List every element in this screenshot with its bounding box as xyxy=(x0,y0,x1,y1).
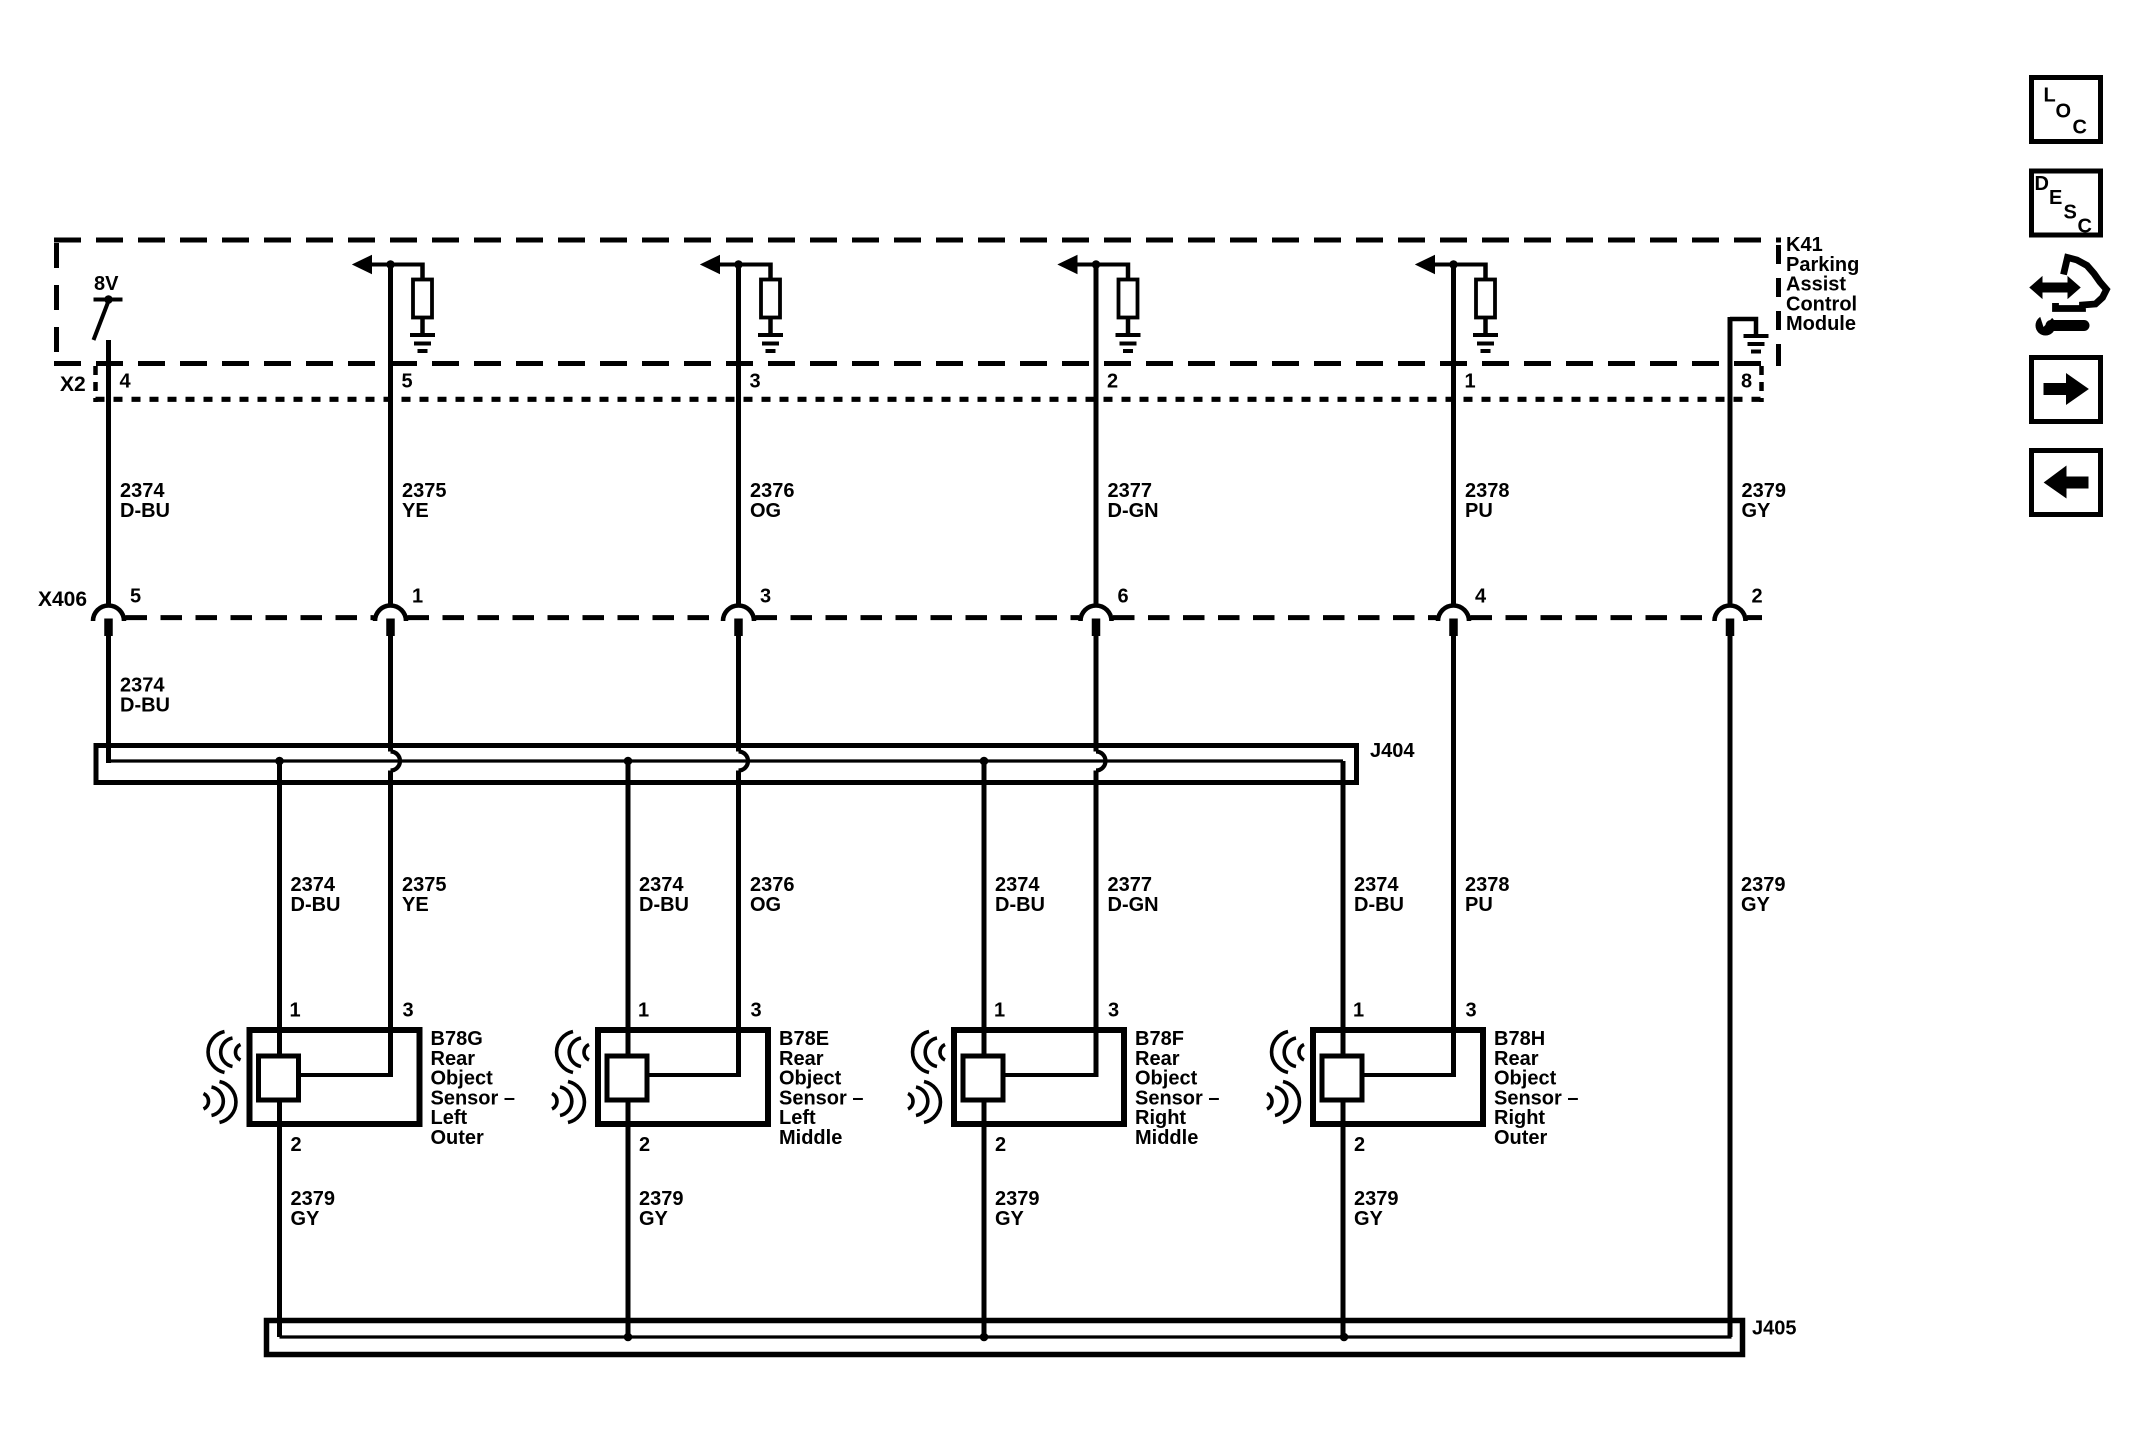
svg-text:5: 5 xyxy=(402,371,413,393)
svg-text:4: 4 xyxy=(1475,586,1487,608)
svg-text:2: 2 xyxy=(1752,586,1763,608)
svg-text:1: 1 xyxy=(994,1000,1005,1022)
svg-text:L: L xyxy=(2044,85,2056,107)
svg-text:Left: Left xyxy=(431,1107,468,1129)
svg-text:2379: 2379 xyxy=(1354,1188,1399,1210)
svg-text:GY: GY xyxy=(995,1208,1025,1230)
svg-text:J404: J404 xyxy=(1370,740,1415,762)
svg-text:GY: GY xyxy=(291,1208,321,1230)
svg-text:2: 2 xyxy=(291,1134,302,1156)
svg-text:D-BU: D-BU xyxy=(120,500,170,522)
svg-text:B78F: B78F xyxy=(1135,1028,1184,1050)
svg-text:D-GN: D-GN xyxy=(1108,500,1159,522)
svg-text:GY: GY xyxy=(1741,894,1771,916)
svg-text:2374: 2374 xyxy=(120,480,165,502)
svg-text:8: 8 xyxy=(1741,371,1752,393)
svg-text:3: 3 xyxy=(750,371,761,393)
svg-text:3: 3 xyxy=(1466,1000,1477,1022)
svg-text:Object: Object xyxy=(1494,1068,1557,1090)
svg-text:PU: PU xyxy=(1465,500,1493,522)
svg-text:GY: GY xyxy=(1742,500,1772,522)
svg-text:Rear: Rear xyxy=(779,1048,824,1070)
svg-text:2377: 2377 xyxy=(1108,874,1153,896)
svg-text:2: 2 xyxy=(1354,1134,1365,1156)
svg-text:B78E: B78E xyxy=(779,1028,829,1050)
svg-text:OG: OG xyxy=(750,500,781,522)
svg-text:K41: K41 xyxy=(1786,234,1823,256)
svg-text:2377: 2377 xyxy=(1108,480,1153,502)
svg-text:J405: J405 xyxy=(1752,1318,1797,1340)
svg-text:2375: 2375 xyxy=(402,874,447,896)
svg-text:3: 3 xyxy=(1108,1000,1119,1022)
svg-text:1: 1 xyxy=(638,1000,649,1022)
svg-text:Left: Left xyxy=(779,1107,816,1129)
svg-text:Module: Module xyxy=(1786,313,1856,335)
svg-text:GY: GY xyxy=(639,1208,669,1230)
svg-text:Sensor –: Sensor – xyxy=(431,1087,515,1109)
svg-text:Right: Right xyxy=(1494,1107,1545,1129)
svg-text:Outer: Outer xyxy=(431,1127,485,1149)
svg-text:S: S xyxy=(2064,202,2077,224)
svg-text:2374: 2374 xyxy=(291,874,336,896)
svg-text:5: 5 xyxy=(130,586,141,608)
svg-text:Sensor –: Sensor – xyxy=(779,1087,863,1109)
svg-text:B78H: B78H xyxy=(1494,1028,1545,1050)
svg-text:1: 1 xyxy=(1353,1000,1364,1022)
svg-text:Middle: Middle xyxy=(779,1127,842,1149)
svg-text:8V: 8V xyxy=(94,273,119,295)
svg-text:2378: 2378 xyxy=(1465,480,1510,502)
svg-text:C: C xyxy=(2078,216,2092,238)
svg-text:B78G: B78G xyxy=(431,1028,483,1050)
svg-text:1: 1 xyxy=(412,586,423,608)
svg-text:D-BU: D-BU xyxy=(1354,894,1404,916)
svg-text:2375: 2375 xyxy=(402,480,447,502)
svg-text:4: 4 xyxy=(120,371,132,393)
svg-text:1: 1 xyxy=(290,1000,301,1022)
svg-text:YE: YE xyxy=(402,500,429,522)
svg-text:OG: OG xyxy=(750,894,781,916)
svg-text:6: 6 xyxy=(1118,586,1129,608)
svg-text:2374: 2374 xyxy=(1354,874,1399,896)
svg-text:Rear: Rear xyxy=(1494,1048,1539,1070)
svg-text:2374: 2374 xyxy=(995,874,1040,896)
svg-text:Control: Control xyxy=(1786,293,1857,315)
svg-text:2374: 2374 xyxy=(639,874,684,896)
svg-text:Object: Object xyxy=(1135,1068,1198,1090)
svg-text:2379: 2379 xyxy=(291,1188,336,1210)
svg-text:Sensor –: Sensor – xyxy=(1494,1087,1578,1109)
svg-text:2376: 2376 xyxy=(750,480,795,502)
svg-text:Rear: Rear xyxy=(431,1048,476,1070)
svg-text:D-BU: D-BU xyxy=(120,695,170,717)
svg-text:D-GN: D-GN xyxy=(1108,894,1159,916)
svg-text:2: 2 xyxy=(1107,371,1118,393)
svg-text:Middle: Middle xyxy=(1135,1127,1198,1149)
svg-text:Outer: Outer xyxy=(1494,1127,1548,1149)
svg-text:2378: 2378 xyxy=(1465,874,1510,896)
svg-text:2379: 2379 xyxy=(639,1188,684,1210)
svg-text:2: 2 xyxy=(995,1134,1006,1156)
svg-text:YE: YE xyxy=(402,894,429,916)
svg-text:2: 2 xyxy=(639,1134,650,1156)
svg-text:D: D xyxy=(2035,173,2049,195)
svg-text:3: 3 xyxy=(403,1000,414,1022)
svg-text:3: 3 xyxy=(760,586,771,608)
svg-text:E: E xyxy=(2049,187,2062,209)
svg-text:2374: 2374 xyxy=(120,675,165,697)
svg-text:2379: 2379 xyxy=(995,1188,1040,1210)
svg-text:Sensor –: Sensor – xyxy=(1135,1087,1219,1109)
svg-text:Rear: Rear xyxy=(1135,1048,1180,1070)
svg-text:O: O xyxy=(2056,101,2072,123)
svg-text:D-BU: D-BU xyxy=(995,894,1045,916)
svg-text:Assist: Assist xyxy=(1786,274,1846,296)
svg-text:Parking: Parking xyxy=(1786,254,1859,276)
svg-text:Right: Right xyxy=(1135,1107,1186,1129)
svg-text:2379: 2379 xyxy=(1742,480,1787,502)
svg-text:X406: X406 xyxy=(38,588,87,611)
svg-text:2379: 2379 xyxy=(1741,874,1786,896)
svg-text:2376: 2376 xyxy=(750,874,795,896)
svg-text:C: C xyxy=(2073,117,2087,139)
svg-text:X2: X2 xyxy=(60,373,86,396)
svg-text:D-BU: D-BU xyxy=(639,894,689,916)
svg-text:1: 1 xyxy=(1465,371,1476,393)
svg-text:GY: GY xyxy=(1354,1208,1384,1230)
svg-text:Object: Object xyxy=(779,1068,842,1090)
svg-text:D-BU: D-BU xyxy=(291,894,341,916)
svg-text:PU: PU xyxy=(1465,894,1493,916)
svg-text:3: 3 xyxy=(751,1000,762,1022)
svg-text:Object: Object xyxy=(431,1068,494,1090)
